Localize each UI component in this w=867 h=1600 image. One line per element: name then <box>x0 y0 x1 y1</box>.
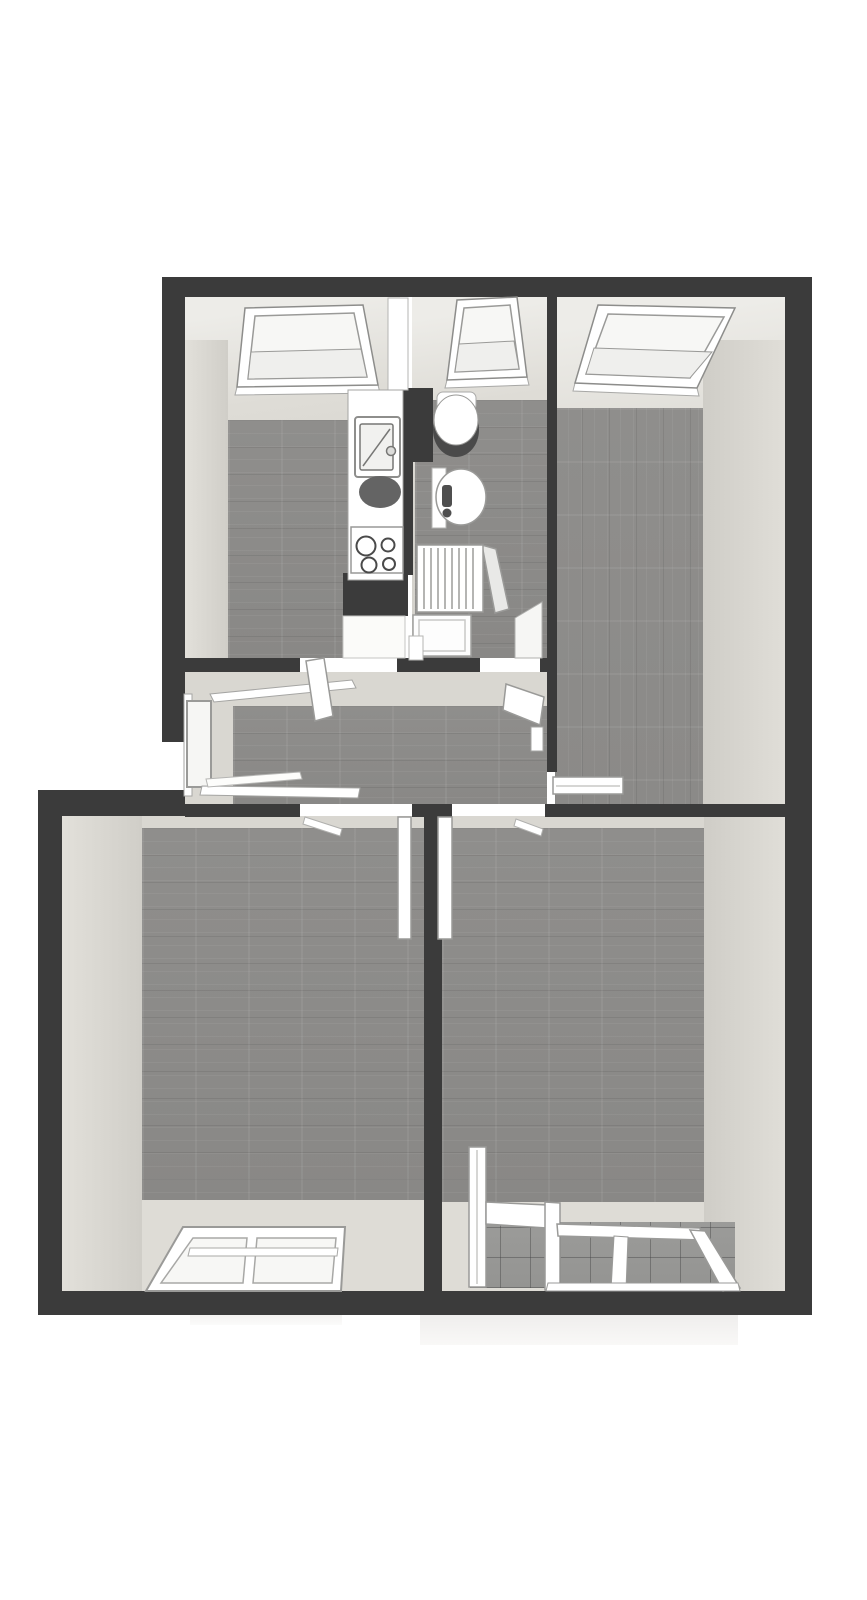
kitchen-cooktop <box>351 527 403 573</box>
shower-tray <box>409 615 471 660</box>
balcony-glazing <box>469 1147 740 1291</box>
roof-window-bathroom <box>445 297 529 388</box>
room-bottom-left-door <box>303 817 411 939</box>
bathroom-corner-panel <box>515 602 542 658</box>
hallway-window-bay <box>184 680 360 798</box>
room-top-right-door <box>531 727 623 794</box>
roof-window-top-right <box>573 305 735 396</box>
window-bottom-left <box>146 1227 345 1291</box>
toilet <box>433 392 479 457</box>
kitchen-sink <box>355 417 400 477</box>
washbasin <box>432 468 486 528</box>
bathroom-door-leaf <box>503 684 544 725</box>
bathroom-radiator <box>417 545 483 612</box>
floorplan-canvas <box>0 0 867 1600</box>
kitchen-dark-basin <box>359 476 401 508</box>
roof-window-kitchen <box>235 305 380 395</box>
shower-glass-screen <box>482 545 509 613</box>
kitchen-door-leaf <box>306 658 333 721</box>
room-bottom-right-door <box>438 817 543 939</box>
detail-overlay <box>0 0 867 1600</box>
